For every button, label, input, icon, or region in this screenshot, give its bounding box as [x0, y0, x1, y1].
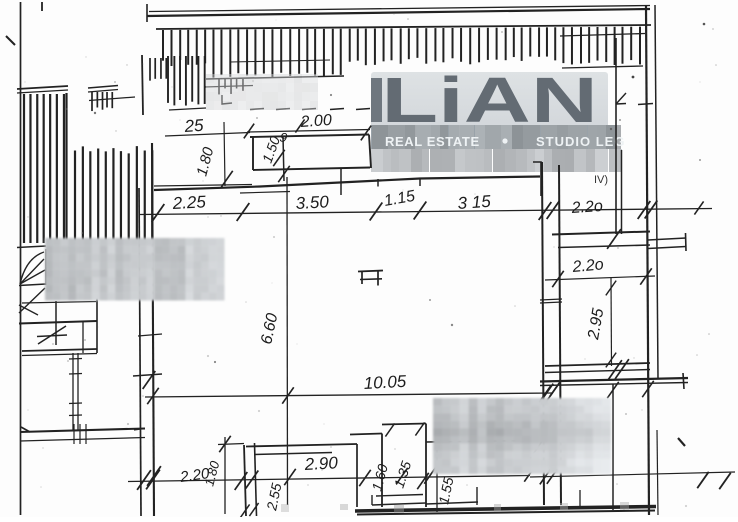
svg-text:2.25: 2.25 [171, 192, 207, 213]
svg-text:REAL ESTATE: REAL ESTATE [385, 134, 480, 149]
svg-text:2.90: 2.90 [303, 453, 339, 474]
svg-text:2.2o: 2.2o [571, 256, 605, 276]
svg-text:2.2o: 2.2o [570, 198, 603, 217]
svg-text:3.50: 3.50 [295, 192, 330, 213]
svg-text:IV): IV) [594, 174, 608, 186]
svg-text:10.05: 10.05 [363, 372, 407, 393]
svg-text:3 15: 3 15 [457, 192, 492, 213]
svg-text:STUDIO LEG: STUDIO LEG [536, 134, 625, 149]
svg-text:LiAN: LiAN [381, 64, 597, 135]
svg-text:25: 25 [183, 116, 205, 136]
svg-text:2.00: 2.00 [299, 112, 332, 131]
